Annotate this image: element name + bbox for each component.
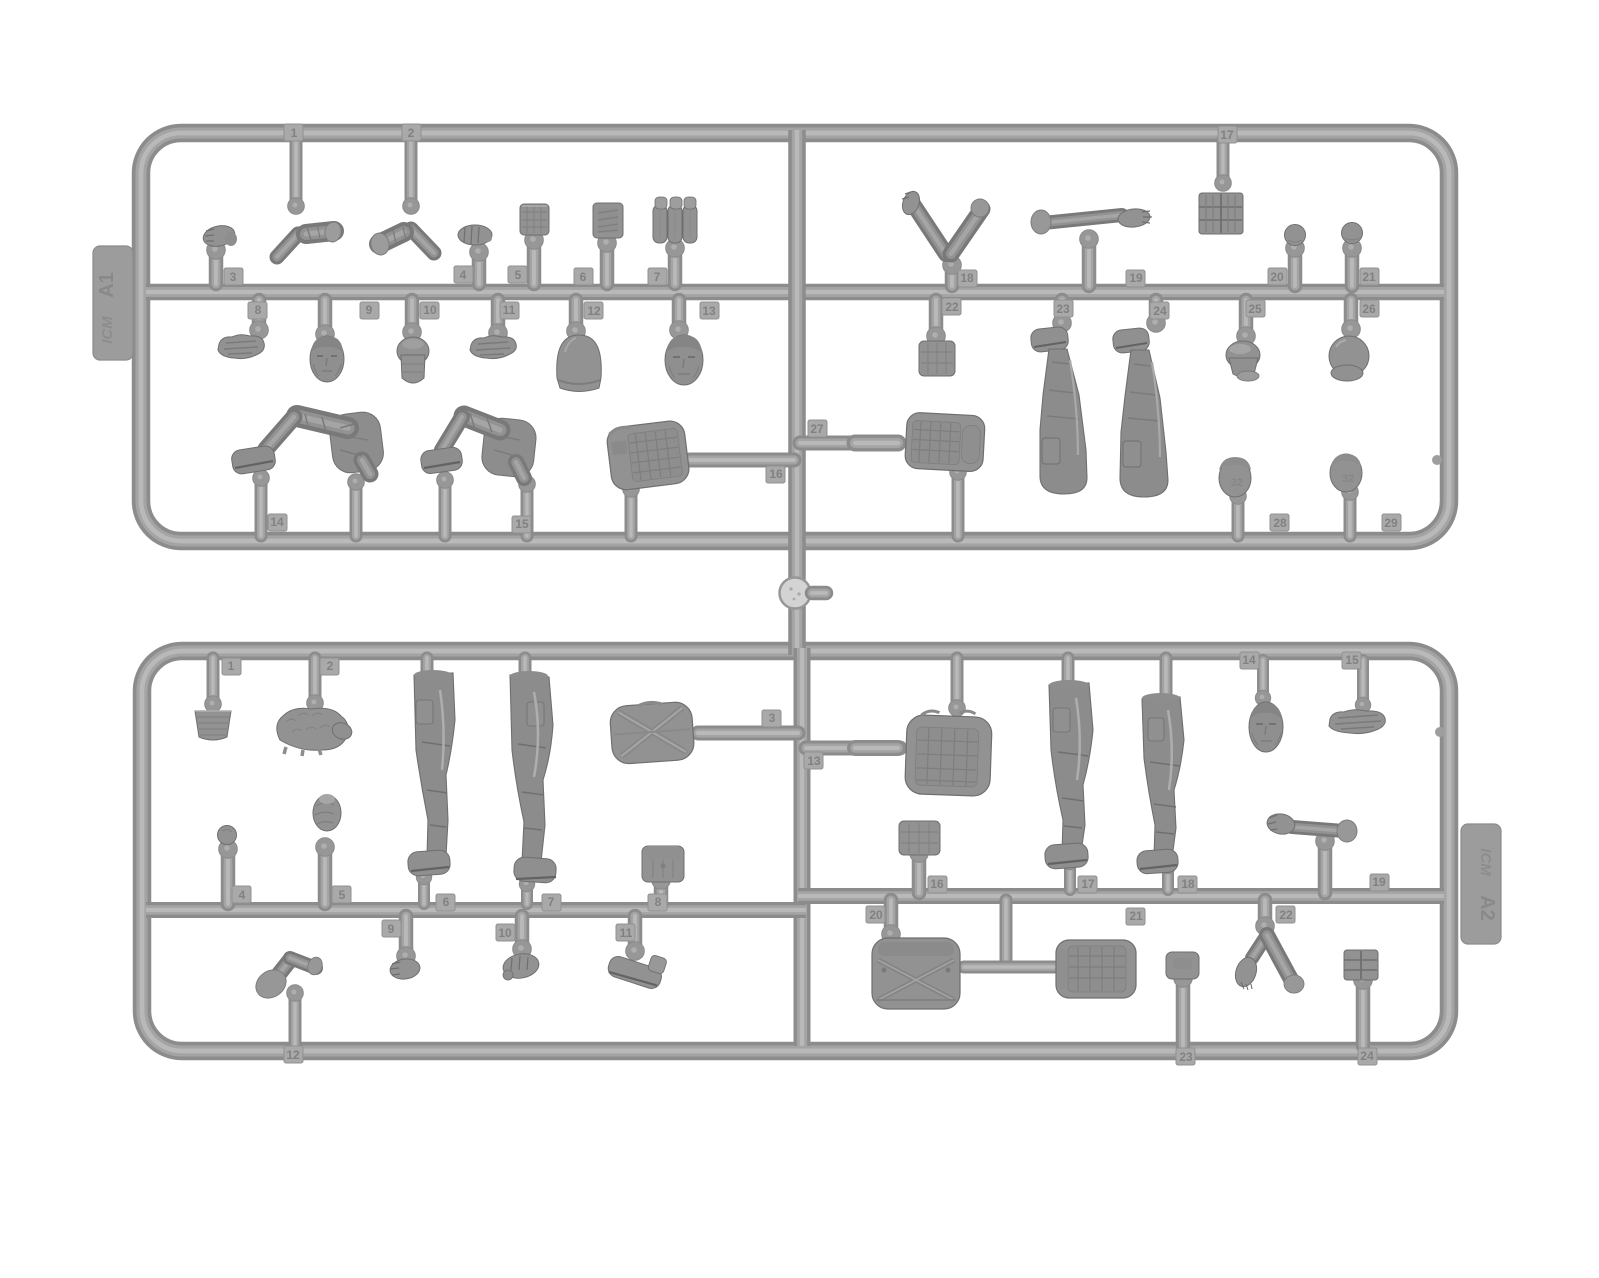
svg-text:4: 4 bbox=[239, 888, 246, 902]
svg-text:ICM: ICM bbox=[99, 316, 116, 344]
svg-text:20: 20 bbox=[869, 908, 883, 922]
svg-text:14: 14 bbox=[270, 515, 284, 529]
svg-text:18: 18 bbox=[960, 271, 974, 285]
svg-text:10: 10 bbox=[423, 303, 437, 317]
svg-text:19: 19 bbox=[1129, 271, 1143, 285]
svg-text:15: 15 bbox=[1345, 653, 1359, 667]
svg-text:8: 8 bbox=[655, 895, 662, 909]
svg-text:A1: A1 bbox=[96, 272, 118, 298]
svg-text:1: 1 bbox=[228, 659, 235, 673]
svg-text:13: 13 bbox=[702, 304, 716, 318]
svg-text:16: 16 bbox=[769, 467, 783, 481]
svg-text:27: 27 bbox=[810, 422, 824, 436]
svg-text:11: 11 bbox=[620, 926, 633, 940]
svg-text:24: 24 bbox=[1360, 1049, 1374, 1063]
svg-text:28: 28 bbox=[1273, 516, 1287, 530]
svg-text:2: 2 bbox=[408, 126, 415, 140]
svg-text:32: 32 bbox=[1231, 477, 1243, 489]
svg-text:22: 22 bbox=[945, 300, 959, 314]
svg-text:7: 7 bbox=[654, 270, 661, 284]
svg-text:1: 1 bbox=[291, 126, 298, 140]
svg-text:9: 9 bbox=[388, 922, 395, 936]
svg-text:3: 3 bbox=[769, 711, 776, 725]
svg-text:25: 25 bbox=[1248, 302, 1262, 316]
svg-text:17: 17 bbox=[1220, 128, 1234, 142]
svg-text:13: 13 bbox=[807, 754, 821, 768]
svg-text:5: 5 bbox=[515, 268, 522, 282]
svg-text:12: 12 bbox=[587, 304, 601, 318]
svg-text:29: 29 bbox=[1384, 516, 1398, 530]
svg-text:7: 7 bbox=[548, 895, 555, 909]
svg-text:22: 22 bbox=[1279, 908, 1293, 922]
svg-text:32: 32 bbox=[1342, 473, 1354, 485]
svg-text:17: 17 bbox=[1081, 877, 1095, 891]
svg-text:20: 20 bbox=[1270, 270, 1284, 284]
svg-text:12: 12 bbox=[286, 1048, 300, 1062]
svg-text:21: 21 bbox=[1129, 909, 1143, 923]
svg-text:24: 24 bbox=[1153, 304, 1167, 318]
svg-text:4: 4 bbox=[460, 268, 467, 282]
svg-text:23: 23 bbox=[1056, 302, 1070, 316]
svg-text:6: 6 bbox=[580, 270, 587, 284]
svg-text:9: 9 bbox=[366, 303, 373, 317]
svg-text:6: 6 bbox=[443, 895, 450, 909]
svg-text:26: 26 bbox=[1362, 302, 1376, 316]
svg-text:18: 18 bbox=[1181, 877, 1195, 891]
svg-text:21: 21 bbox=[1362, 270, 1376, 284]
svg-text:8: 8 bbox=[255, 303, 262, 317]
svg-text:11: 11 bbox=[503, 303, 516, 317]
svg-text:10: 10 bbox=[498, 926, 512, 940]
svg-text:16: 16 bbox=[930, 877, 944, 891]
svg-text:15: 15 bbox=[515, 517, 529, 531]
svg-text:23: 23 bbox=[1179, 1050, 1193, 1064]
svg-text:14: 14 bbox=[1242, 653, 1256, 667]
svg-text:3: 3 bbox=[230, 270, 237, 284]
svg-text:ICM: ICM bbox=[1477, 848, 1494, 876]
svg-text:2: 2 bbox=[327, 659, 334, 673]
svg-text:A2: A2 bbox=[1476, 895, 1498, 921]
svg-text:19: 19 bbox=[1372, 875, 1386, 889]
svg-text:5: 5 bbox=[339, 888, 346, 902]
